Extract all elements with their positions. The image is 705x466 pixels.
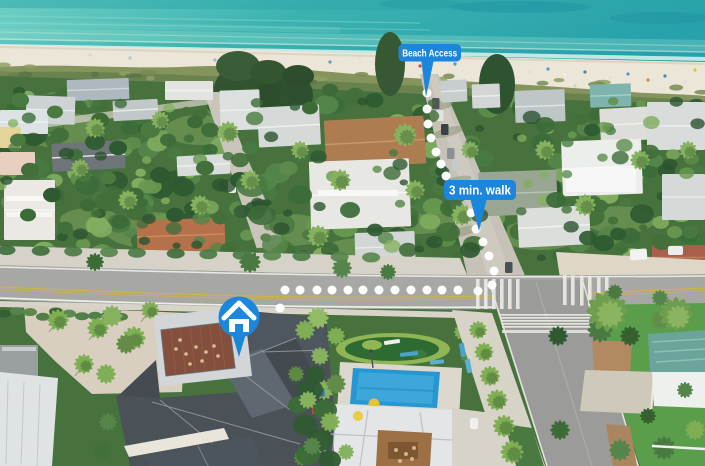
svg-text:3 min. walk: 3 min. walk	[449, 183, 512, 198]
svg-text:Beach Access: Beach Access	[402, 49, 457, 60]
